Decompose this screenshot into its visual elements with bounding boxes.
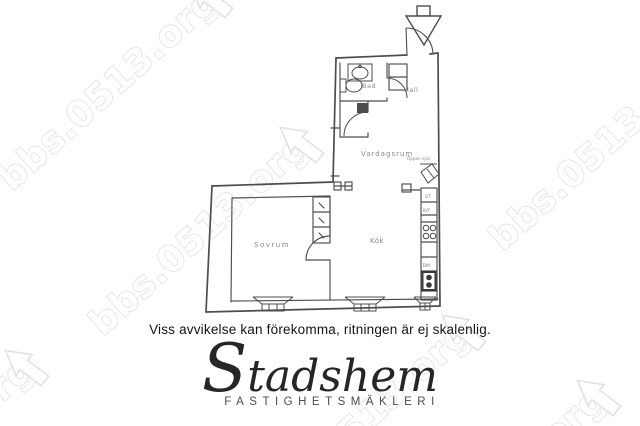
stove-icon: [423, 225, 436, 239]
washer-icon: [357, 103, 368, 113]
shower-door-arc: [344, 112, 368, 136]
label-hall: Hall: [404, 86, 418, 94]
label-dm: DM: [423, 263, 430, 269]
sink-icon: [423, 272, 436, 290]
logo-tagline: FASTIGHETSMÄKLERI: [12, 396, 640, 408]
label-kf: K/F: [423, 208, 430, 214]
label-oppen-spis: Öppen spis: [407, 156, 430, 161]
label-sovrum: Sovrum: [254, 241, 290, 249]
fireplace-icon: [420, 164, 439, 183]
north-arrow-icon: [406, 6, 441, 45]
label-st: ST: [425, 194, 431, 200]
floorplan-page: bbs.0513.org bbs.0513.org bbs.0513.org b…: [0, 0, 640, 426]
toilet-icon: [340, 79, 346, 92]
label-vardagsrum: Vardagsrum: [361, 150, 413, 158]
label-bad: Bad: [362, 82, 376, 90]
bathroom-fixtures: [340, 64, 407, 136]
label-kok: Kök: [370, 237, 385, 245]
disclaimer-text: Viss avvikelse kan förekomma, ritningen …: [0, 322, 640, 337]
logo-wordmark: Stadshem: [0, 346, 640, 400]
stadshem-logo: Stadshem FASTIGHETSMÄKLERI: [0, 346, 640, 408]
room-labels: Bad Hall Vardagsrum Öppen spis Sovrum Kö…: [254, 82, 431, 269]
